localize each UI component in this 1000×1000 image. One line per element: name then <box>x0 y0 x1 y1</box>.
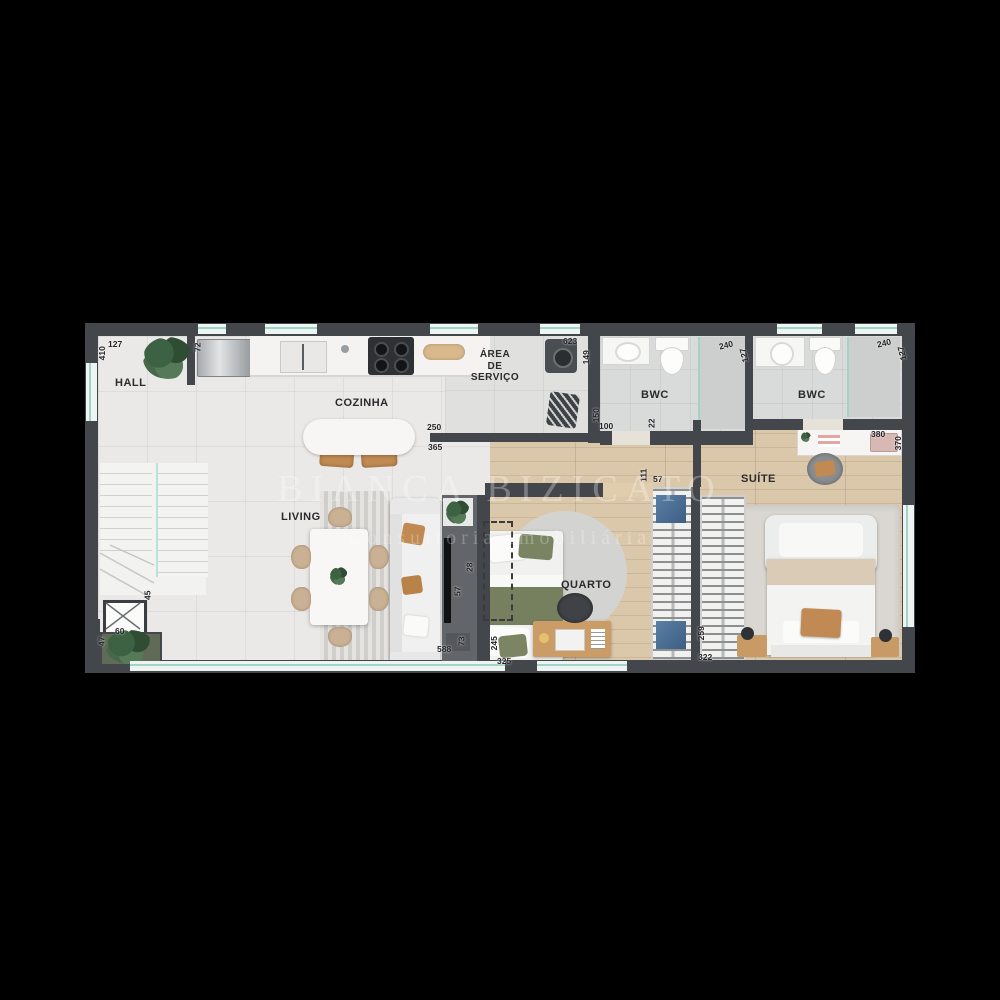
suite-nightstand-left <box>737 635 767 657</box>
window-top-kitchen-2 <box>430 324 478 334</box>
dim-planter-b: 47 <box>97 637 106 646</box>
room-label-bwc2: BWC <box>798 389 826 402</box>
desk-books <box>591 629 605 649</box>
laundry-basket <box>546 391 580 429</box>
burner <box>374 342 389 357</box>
counter-faucet <box>341 345 349 353</box>
servico-label-line2: DE <box>457 361 533 373</box>
dim-suite-closet-a: 259 <box>697 626 706 640</box>
dim-island-b: 365 <box>428 443 442 452</box>
burner <box>374 358 389 373</box>
suite-desk-chair <box>807 453 843 485</box>
suite-footboard <box>771 645 871 657</box>
bwc1-vanity <box>602 337 650 365</box>
quarto-closet <box>651 487 695 661</box>
dim-living-wall: 73 <box>457 637 466 646</box>
laptop <box>555 629 585 651</box>
dim-hall-width: 127 <box>108 340 122 349</box>
watermark-line2: Consultoria Imobiliária <box>285 527 715 550</box>
room-label-quarto: QUARTO <box>561 579 611 592</box>
wall-kitchen-half <box>430 433 590 442</box>
bwc2-shower-glass <box>847 337 849 417</box>
window-top-bwc1 <box>777 324 822 334</box>
sofa-pillow-white <box>403 615 429 637</box>
dim-living-span: 588 <box>437 645 451 654</box>
table-centerpiece-plant <box>330 567 348 585</box>
suite-lamp-left <box>741 627 754 640</box>
dim-hall-depth: 410 <box>98 346 107 360</box>
dim-suite-desk-a: 380 <box>871 430 885 439</box>
dim-tv-wall-a: 28 <box>465 563 474 572</box>
sofa-pillow-tan <box>401 575 423 596</box>
suite-throw-pillow <box>800 608 841 638</box>
dim-suite-desk-b: 370 <box>894 436 903 450</box>
tv-screen <box>444 538 451 623</box>
dining-chair <box>369 587 389 611</box>
floor-plan-image: HALL COZINHA ÁREA DE SERVIÇO BWC BWC LIV… <box>0 0 1000 1000</box>
suite-lamp-right <box>879 629 892 642</box>
dim-tv-wall-b: 57 <box>453 587 462 596</box>
dining-chair <box>328 627 352 647</box>
dim-servico-washer: 149 <box>582 350 591 364</box>
room-label-servico: ÁREA DE SERVIÇO <box>457 349 533 384</box>
quarto-foot-cushion-olive <box>498 634 528 659</box>
dim-bwc1-wall: 22 <box>647 419 656 428</box>
sofa-back <box>390 498 402 668</box>
suite-head-pillow <box>779 523 863 557</box>
suite-desk-plant <box>801 432 811 442</box>
suite-bed <box>763 515 879 663</box>
kitchen-island <box>303 419 415 455</box>
closet-storage-box <box>656 621 686 649</box>
servico-label-line1: ÁREA <box>457 349 533 361</box>
bwc2-sink <box>770 342 794 366</box>
planter-plant <box>106 630 154 664</box>
bwc2-shower <box>849 337 900 417</box>
dim-bwc1-shower-b: 100 <box>599 422 613 431</box>
window-top-bwc2 <box>855 324 897 334</box>
stair-winders <box>100 463 206 595</box>
servico-label-line3: SERVIÇO <box>457 372 533 384</box>
window-top-servico <box>540 324 580 334</box>
room-label-hall: HALL <box>115 377 146 390</box>
floor-plan: HALL COZINHA ÁREA DE SERVIÇO BWC BWC LIV… <box>85 323 915 673</box>
suite-nightstand-right <box>871 637 899 657</box>
quarto-desk-chair <box>557 593 593 623</box>
window-living-balcony <box>130 661 505 671</box>
bwc2-vanity <box>755 337 805 367</box>
suite-desk-decor <box>818 435 840 447</box>
bwc1-sink <box>615 342 641 362</box>
watermark-line1: BIANCA BIZICATO <box>215 467 785 511</box>
window-suite-right <box>903 505 914 627</box>
suite-chair-pillow <box>814 460 836 478</box>
dim-suite-closet-b: 322 <box>698 653 712 662</box>
burner <box>394 342 409 357</box>
dim-planter-a: 60 <box>115 627 124 636</box>
built-in-oven <box>280 341 327 373</box>
room-label-bwc1: BWC <box>641 389 669 402</box>
washer-door <box>553 348 573 368</box>
cooktop <box>368 337 414 375</box>
dim-shaft: 45 <box>143 591 152 600</box>
window-top-hall <box>198 324 226 334</box>
window-top-kitchen-1 <box>265 324 317 334</box>
bwc1-shower-glass <box>698 337 700 429</box>
burner <box>394 358 409 373</box>
window-quarto-bottom <box>537 661 627 671</box>
dim-quarto-span: 325 <box>497 657 511 666</box>
dining-chair <box>291 587 311 611</box>
room-label-cozinha: COZINHA <box>335 397 389 410</box>
fridge <box>197 339 253 377</box>
room-label-living: LIVING <box>281 511 321 524</box>
dim-servico-width: 623 <box>563 337 577 346</box>
sofa <box>390 498 440 668</box>
oven-handle <box>302 344 304 370</box>
dim-island-a: 250 <box>427 423 441 432</box>
bwc2-door-opening <box>803 419 843 430</box>
suite-desk <box>797 428 902 456</box>
suite-bed-band <box>767 559 875 585</box>
entry-door-recess <box>86 363 97 421</box>
desk-mug <box>539 633 549 643</box>
bwc1-door-opening <box>612 431 650 445</box>
dim-quarto-bed-a: 245 <box>490 636 499 650</box>
dim-hall-cabinet: 72 <box>193 343 202 352</box>
hall-plant <box>143 337 193 379</box>
quarto-desk <box>533 621 611 657</box>
staircase <box>100 463 206 595</box>
